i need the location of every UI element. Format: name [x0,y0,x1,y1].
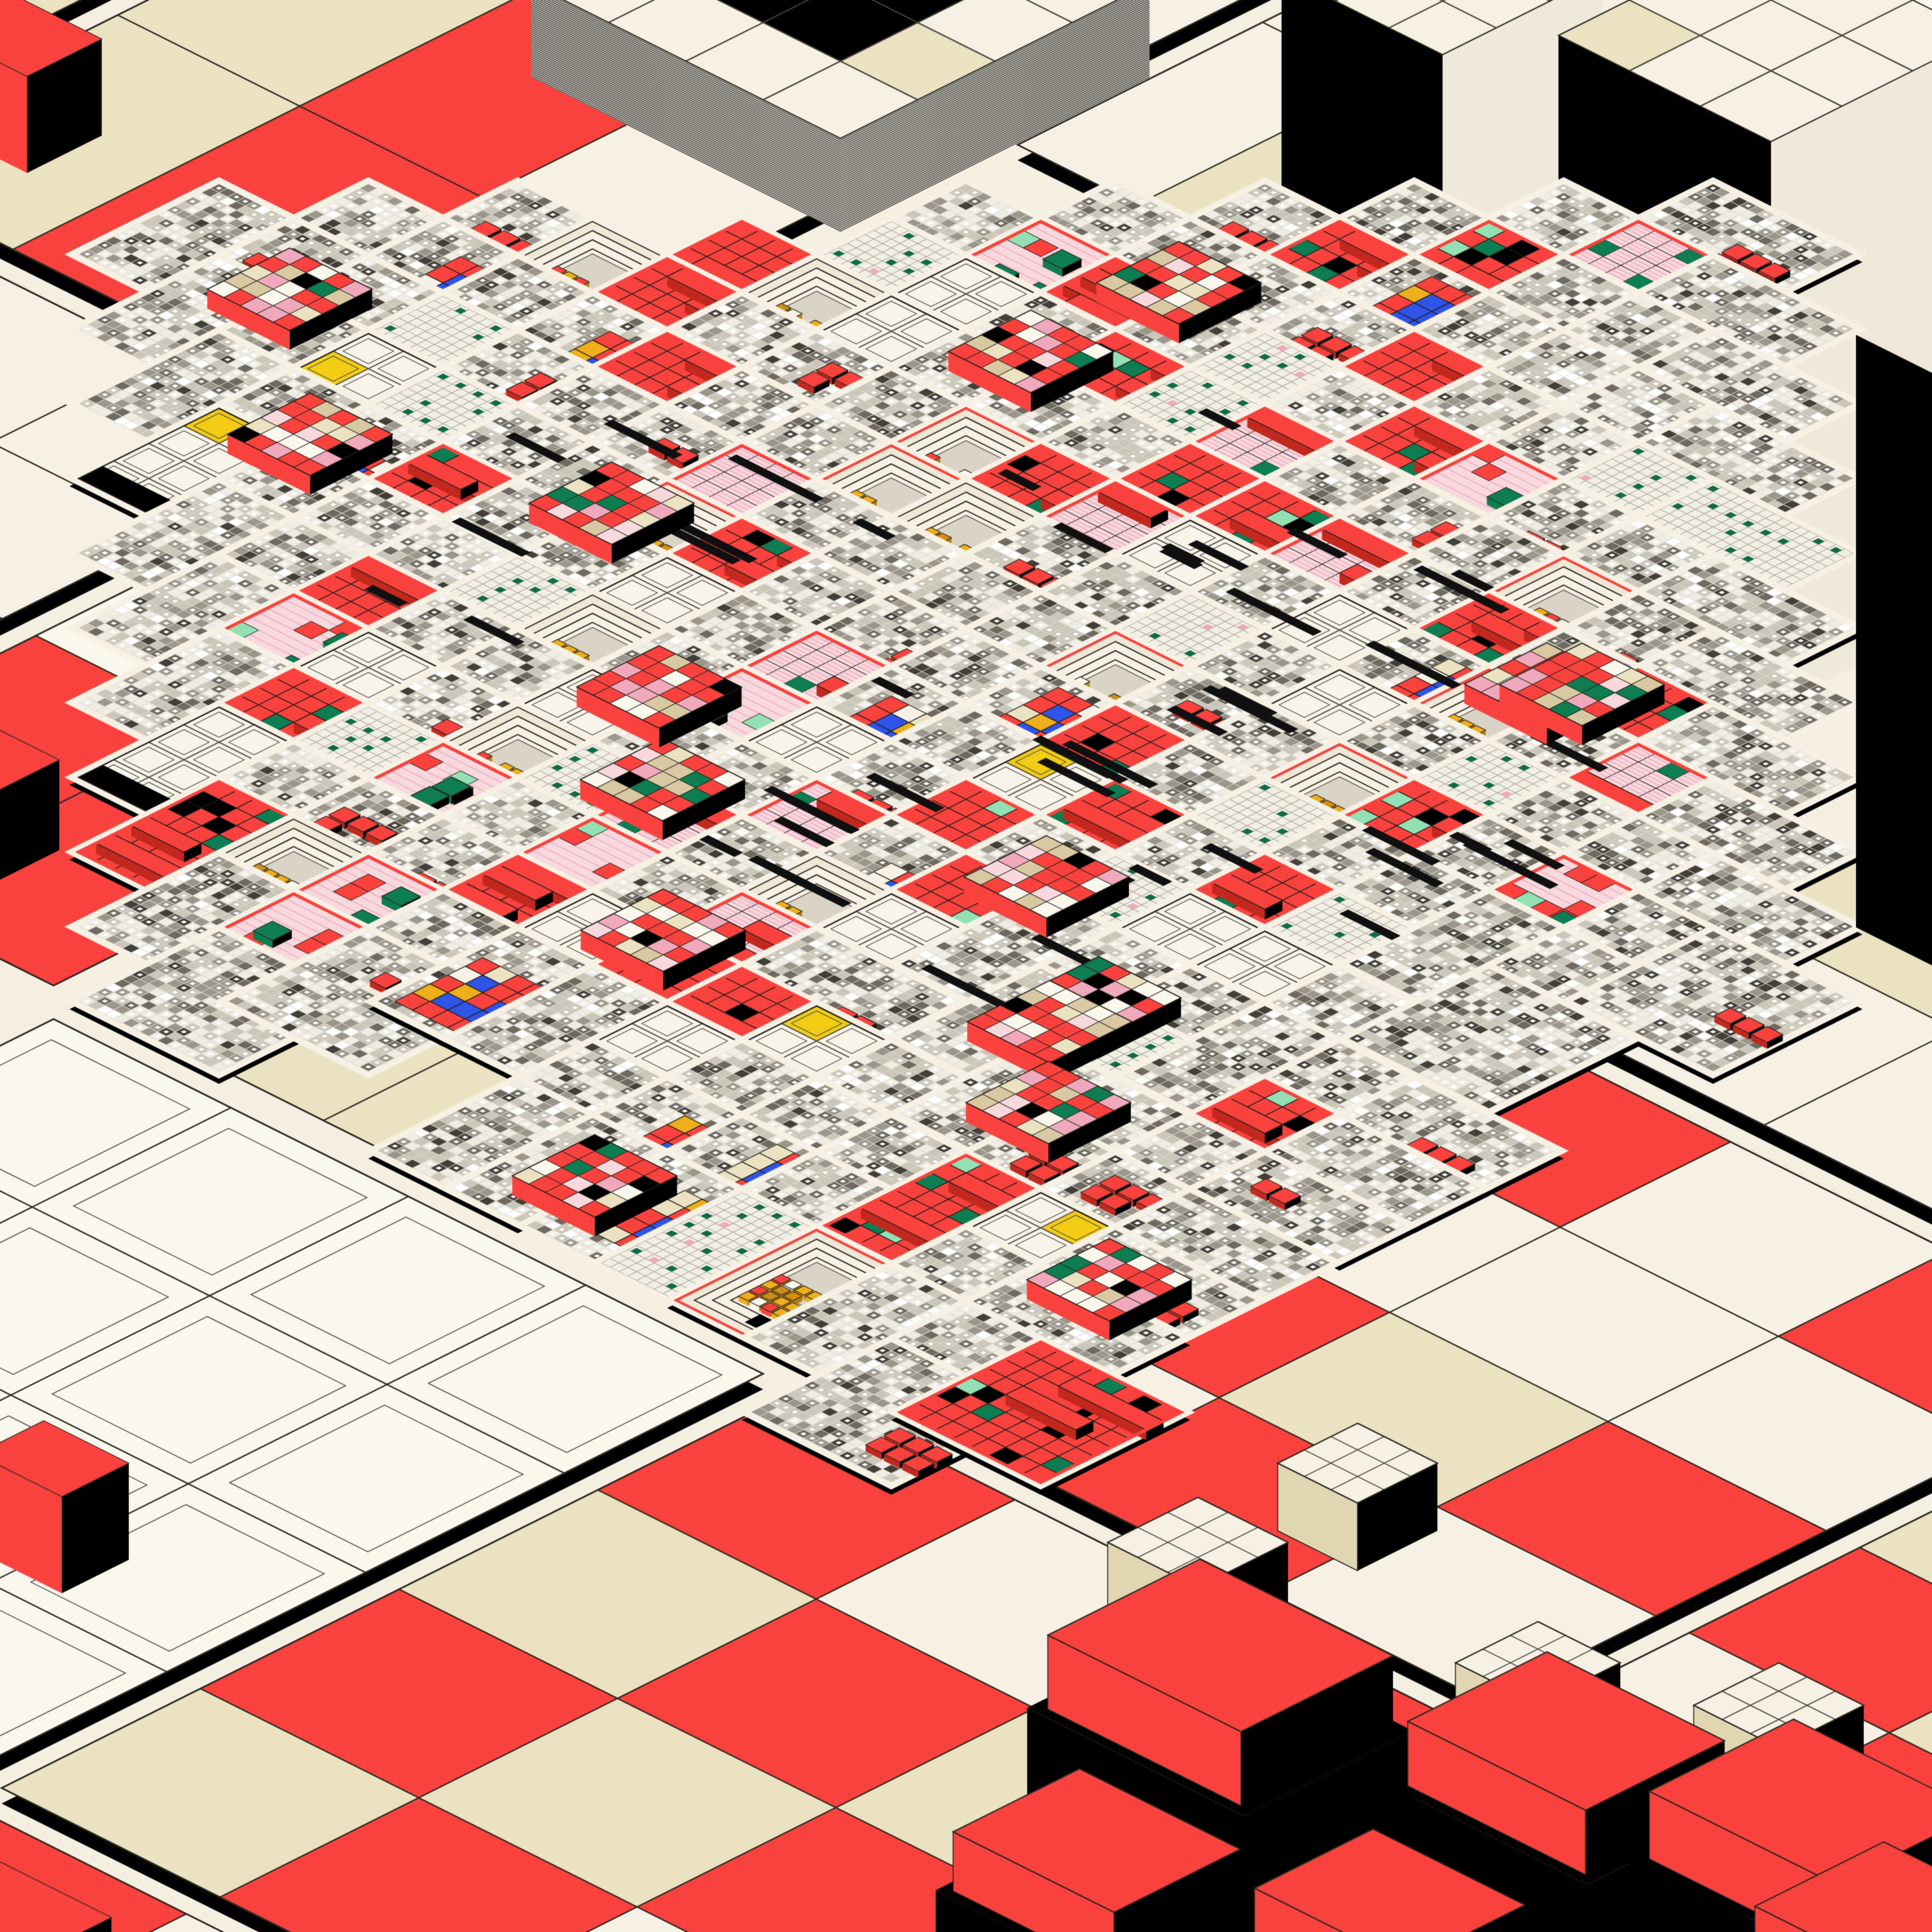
isometric-city-artwork-canvas [0,0,1932,1932]
generative-isometric-city-poster [0,0,1932,1932]
